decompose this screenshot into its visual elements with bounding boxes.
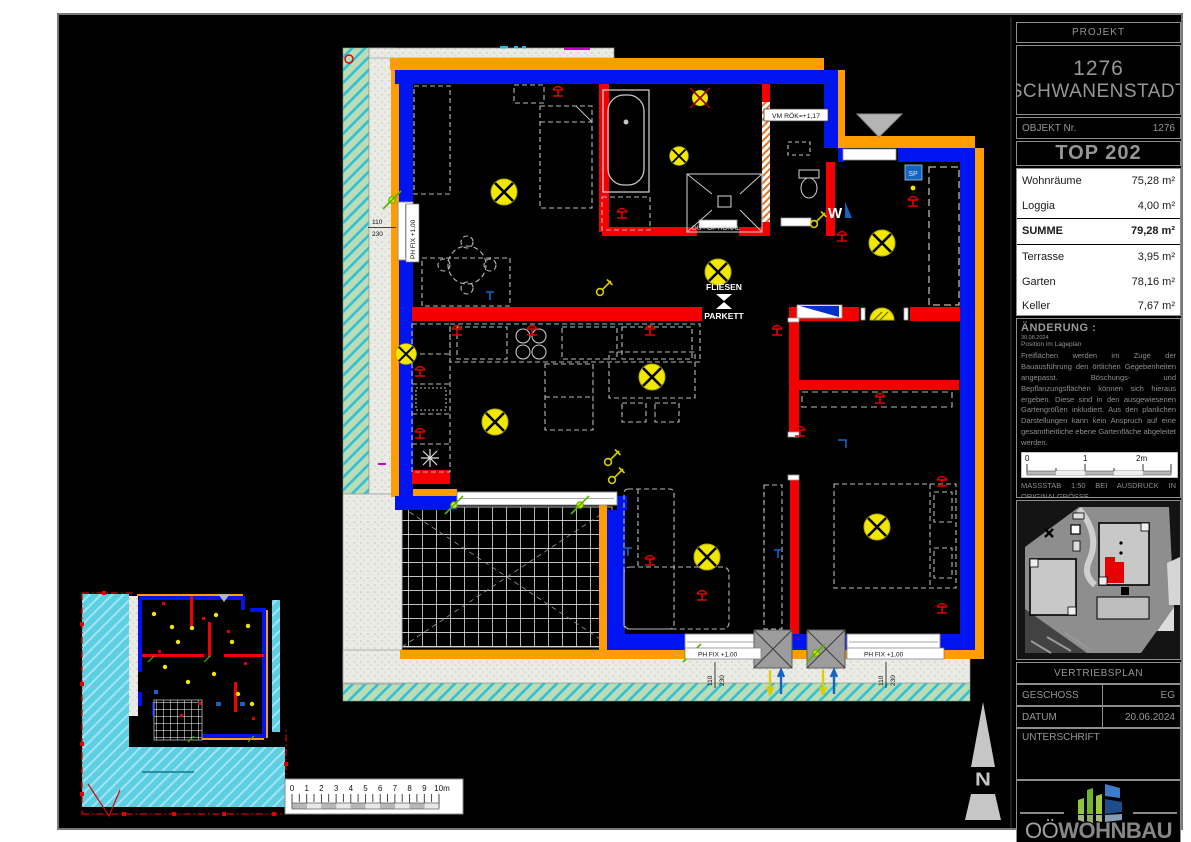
svg-text:1: 1 <box>304 784 309 793</box>
floor-change-symbol: FLIESEN PARKETT <box>704 282 744 321</box>
svg-text:8: 8 <box>407 784 412 793</box>
svg-text:0: 0 <box>290 784 295 793</box>
area-row: Terrasse 3,95 m² <box>1017 245 1180 270</box>
top-number-box: TOP 202 <box>1016 141 1181 166</box>
svg-text:110: 110 <box>372 219 383 226</box>
top-label: TOP 202 <box>1055 142 1141 165</box>
projekt-header: PROJEKT <box>1016 22 1181 43</box>
objekt-row: OBJEKT Nr. 1276 <box>1016 117 1181 139</box>
area-table: Wohnräume 75,28 m² Loggia 4,00 m² SUMME … <box>1016 168 1181 316</box>
titleblock-scale-bar: 0 1 2m <box>1021 452 1178 478</box>
project-city: SCHWANENSTADT <box>1016 81 1181 103</box>
fliesen-label: FLIESEN <box>706 282 742 292</box>
svg-text:PH FIX +1,00: PH FIX +1,00 <box>698 652 738 659</box>
washing-machine-mark: W <box>828 202 852 222</box>
logo-flank-line <box>1020 812 1064 814</box>
svg-text:SP: SP <box>908 171 918 178</box>
datum-value: 20.06.2024 <box>1102 707 1180 727</box>
datum-row: DATUM 20.06.2024 <box>1016 706 1181 728</box>
unterschrift-box: UNTERSCHRIFT <box>1016 728 1181 780</box>
svg-text:230: 230 <box>372 231 383 238</box>
svg-text:PH FIX +1,00: PH FIX +1,00 <box>864 652 904 659</box>
aenderung-subline: Position im Lageplan <box>1021 341 1176 348</box>
svg-text:1: 1 <box>1083 454 1088 463</box>
aenderung-heading: ÄNDERUNG : <box>1021 322 1176 334</box>
geschoss-value: EG <box>1102 685 1180 705</box>
area-row: Keller 7,67 m² <box>1017 294 1180 316</box>
vertriebsplan-box: VERTRIEBSPLAN <box>1016 662 1181 684</box>
title-block: PROJEKT 1276 SCHWANENSTADT OBJEKT Nr. 12… <box>1016 22 1183 830</box>
aenderung-section: ÄNDERUNG : 30.08.2024 Position im Lagepl… <box>1016 318 1181 498</box>
area-row: Loggia 4,00 m² <box>1017 194 1180 219</box>
vmrok-label: VM RÖK=+1,17 <box>764 109 828 121</box>
objekt-label: OBJEKT Nr. <box>1022 123 1076 134</box>
mini-overview-plan <box>80 591 288 816</box>
window-label-left: PH FIX +1,00 <box>406 204 419 262</box>
wc-toilet <box>788 142 819 198</box>
main-scale-bar: 0 1 2 3 4 5 6 7 8 9 10m <box>285 779 463 814</box>
svg-text:2m: 2m <box>1136 454 1147 463</box>
svg-text:VM RÖK=+1,17: VM RÖK=+1,17 <box>772 112 820 120</box>
north-label: N <box>975 770 991 790</box>
du-optional-label: DU - OPTIONAL <box>692 225 740 232</box>
svg-text:230: 230 <box>890 675 897 686</box>
vertriebsplan-label: VERTRIEBSPLAN <box>1054 668 1143 679</box>
svg-text:110: 110 <box>707 675 714 686</box>
svg-text:110: 110 <box>878 675 885 686</box>
project-number: 1276 <box>1073 57 1124 81</box>
area-sum-row: SUMME 79,28 m² <box>1017 218 1180 245</box>
bedroom2-furniture <box>834 484 956 588</box>
geschoss-row: GESCHOSS EG <box>1016 684 1181 706</box>
project-name-box: 1276 SCHWANENSTADT <box>1016 45 1181 115</box>
unterschrift-label: UNTERSCHRIFT <box>1022 732 1100 743</box>
sp-box: SP <box>905 165 922 190</box>
svg-text:10m: 10m <box>434 784 450 793</box>
bathtub <box>603 90 649 192</box>
svg-text:PH FIX +1,00: PH FIX +1,00 <box>410 219 417 259</box>
north-arrow: N <box>965 702 1001 820</box>
parkett-label: PARKETT <box>704 311 744 321</box>
window-label-bottom-2: PH FIX +1,00 <box>847 648 944 659</box>
cooktop <box>516 329 546 359</box>
svg-text:4: 4 <box>349 784 354 793</box>
svg-text:230: 230 <box>719 675 726 686</box>
bath-vanity <box>602 197 650 230</box>
terrace-grid <box>402 507 612 647</box>
objekt-value: 1276 <box>1153 123 1175 134</box>
svg-text:7: 7 <box>393 784 398 793</box>
logo-flank-line <box>1133 812 1177 814</box>
massstab-note: MASSSTAB 1:50 BEI AUSDRUCK IN ORIGINALGR… <box>1021 480 1176 498</box>
logo-text: OÖWOHNBAU <box>1017 818 1180 842</box>
floor-plan-drawing: DU - OPTIONAL VM RÖK=+1,17 W <box>59 15 1181 828</box>
geschoss-label: GESCHOSS <box>1017 685 1102 705</box>
svg-text:6: 6 <box>378 784 383 793</box>
site-plan-thumbnail <box>1016 500 1181 660</box>
interior-doors <box>699 218 908 480</box>
datum-label: DATUM <box>1017 707 1102 727</box>
svg-text:9: 9 <box>422 784 427 793</box>
floor-plan-sheet-page: DU - OPTIONAL VM RÖK=+1,17 W <box>0 0 1191 842</box>
svg-text:0: 0 <box>1025 454 1030 463</box>
logo-box: OÖWOHNBAU <box>1016 780 1181 842</box>
projekt-label: PROJEKT <box>1072 27 1125 38</box>
area-row: Garten 78,16 m² <box>1017 269 1180 294</box>
drawing-sheet: DU - OPTIONAL VM RÖK=+1,17 W <box>57 13 1183 830</box>
window-label-bottom-1: PH FIX +1,00 <box>685 648 761 659</box>
aenderung-body: Freiflächen werden im Zuge der Bauausfüh… <box>1021 351 1176 449</box>
kitchen-star-symbol <box>421 449 439 467</box>
svg-text:2: 2 <box>319 784 324 793</box>
area-row: Wohnräume 75,28 m² <box>1017 169 1180 194</box>
svg-text:W: W <box>828 205 843 222</box>
entry-hall-wardrobe <box>929 167 959 305</box>
entrance-arrow-icon <box>857 114 902 137</box>
svg-text:3: 3 <box>334 784 339 793</box>
svg-text:5: 5 <box>363 784 368 793</box>
